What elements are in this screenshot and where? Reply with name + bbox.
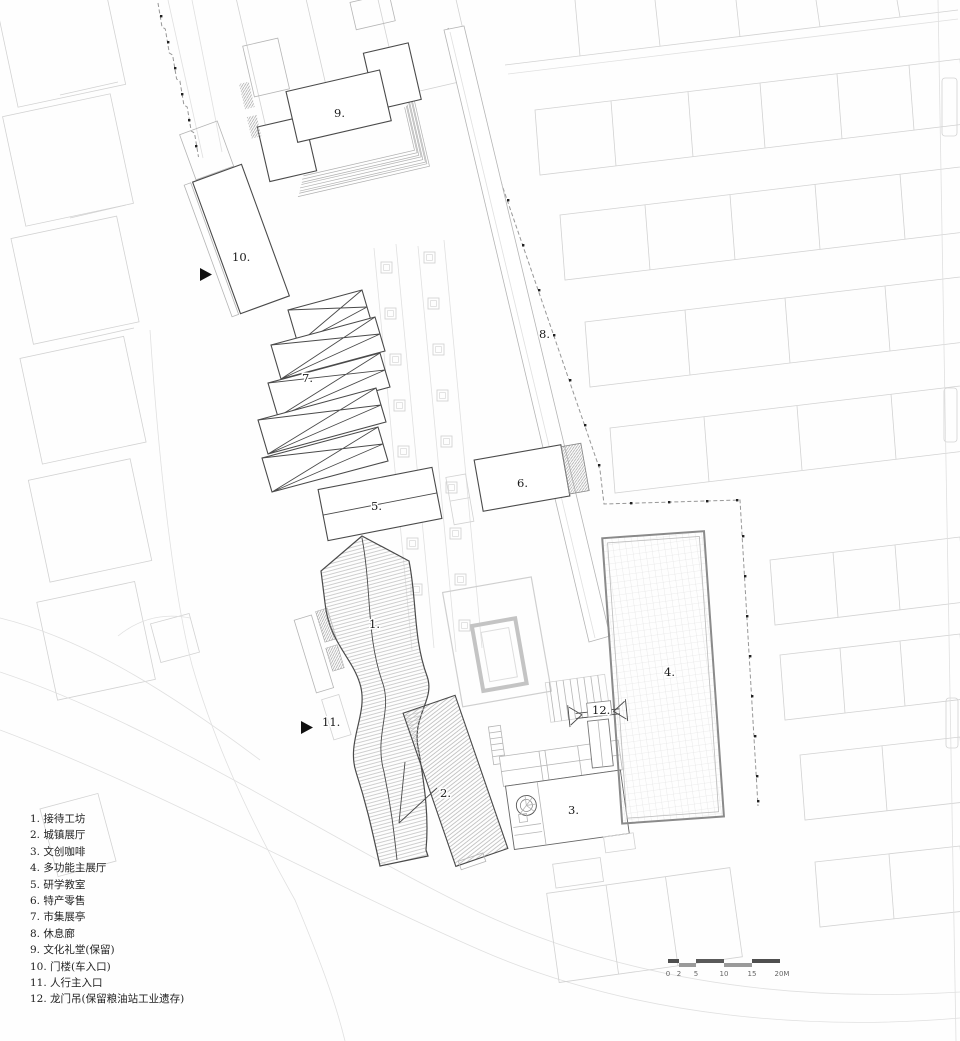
legend: 1. 接待工坊 2. 城镇展厅 3. 文创咖啡 4. 多功能主展厅 5. 研学教… <box>30 811 184 1008</box>
building-1-reception-workshop <box>321 536 429 866</box>
courtyard-pool <box>443 577 552 707</box>
site-plan-drawing: 1. 2. 3. 4. 5. 6. 7. 8. 9. 10. 11. 12. 1… <box>0 0 960 1041</box>
legend-item: 8. 休息廊 <box>30 926 184 942</box>
legend-item: 7. 市集展亭 <box>30 909 184 925</box>
legend-item: 9. 文化礼堂(保留) <box>30 942 184 958</box>
context-buildings-left <box>0 0 199 877</box>
legend-item: 2. 城镇展厅 <box>30 827 184 843</box>
label-building-3: 3. <box>568 803 579 817</box>
label-building-6: 6. <box>517 476 528 490</box>
legend-item: 1. 接待工坊 <box>30 811 184 827</box>
car-entrance-arrow <box>200 268 212 281</box>
label-building-11: 11. <box>322 715 340 729</box>
label-building-4: 4. <box>664 665 675 679</box>
label-building-1: 1. <box>369 617 380 631</box>
pedestrian-entrance-arrow <box>301 721 313 734</box>
legend-item: 5. 研学教室 <box>30 877 184 893</box>
label-building-5: 5. <box>371 499 382 513</box>
context-bottom-block <box>543 840 743 983</box>
label-building-8: 8. <box>539 327 550 341</box>
legend-item: 12. 龙门吊(保留粮油站工业遗存) <box>30 991 184 1007</box>
building-7-market-pavilion <box>258 290 390 492</box>
legend-item: 4. 多功能主展厅 <box>30 860 184 876</box>
legend-item: 11. 人行主入口 <box>30 975 184 991</box>
legend-item: 6. 特产零售 <box>30 893 184 909</box>
label-building-9: 9. <box>334 106 345 120</box>
label-building-12: 12. <box>592 703 610 717</box>
building-8-rest-corridor <box>444 26 610 642</box>
legend-item: 3. 文创咖啡 <box>30 844 184 860</box>
label-building-2: 2. <box>440 786 451 800</box>
label-building-7: 7. <box>302 371 313 385</box>
legend-item: 10. 门楼(车入口) <box>30 959 184 975</box>
label-building-10: 10. <box>232 250 250 264</box>
